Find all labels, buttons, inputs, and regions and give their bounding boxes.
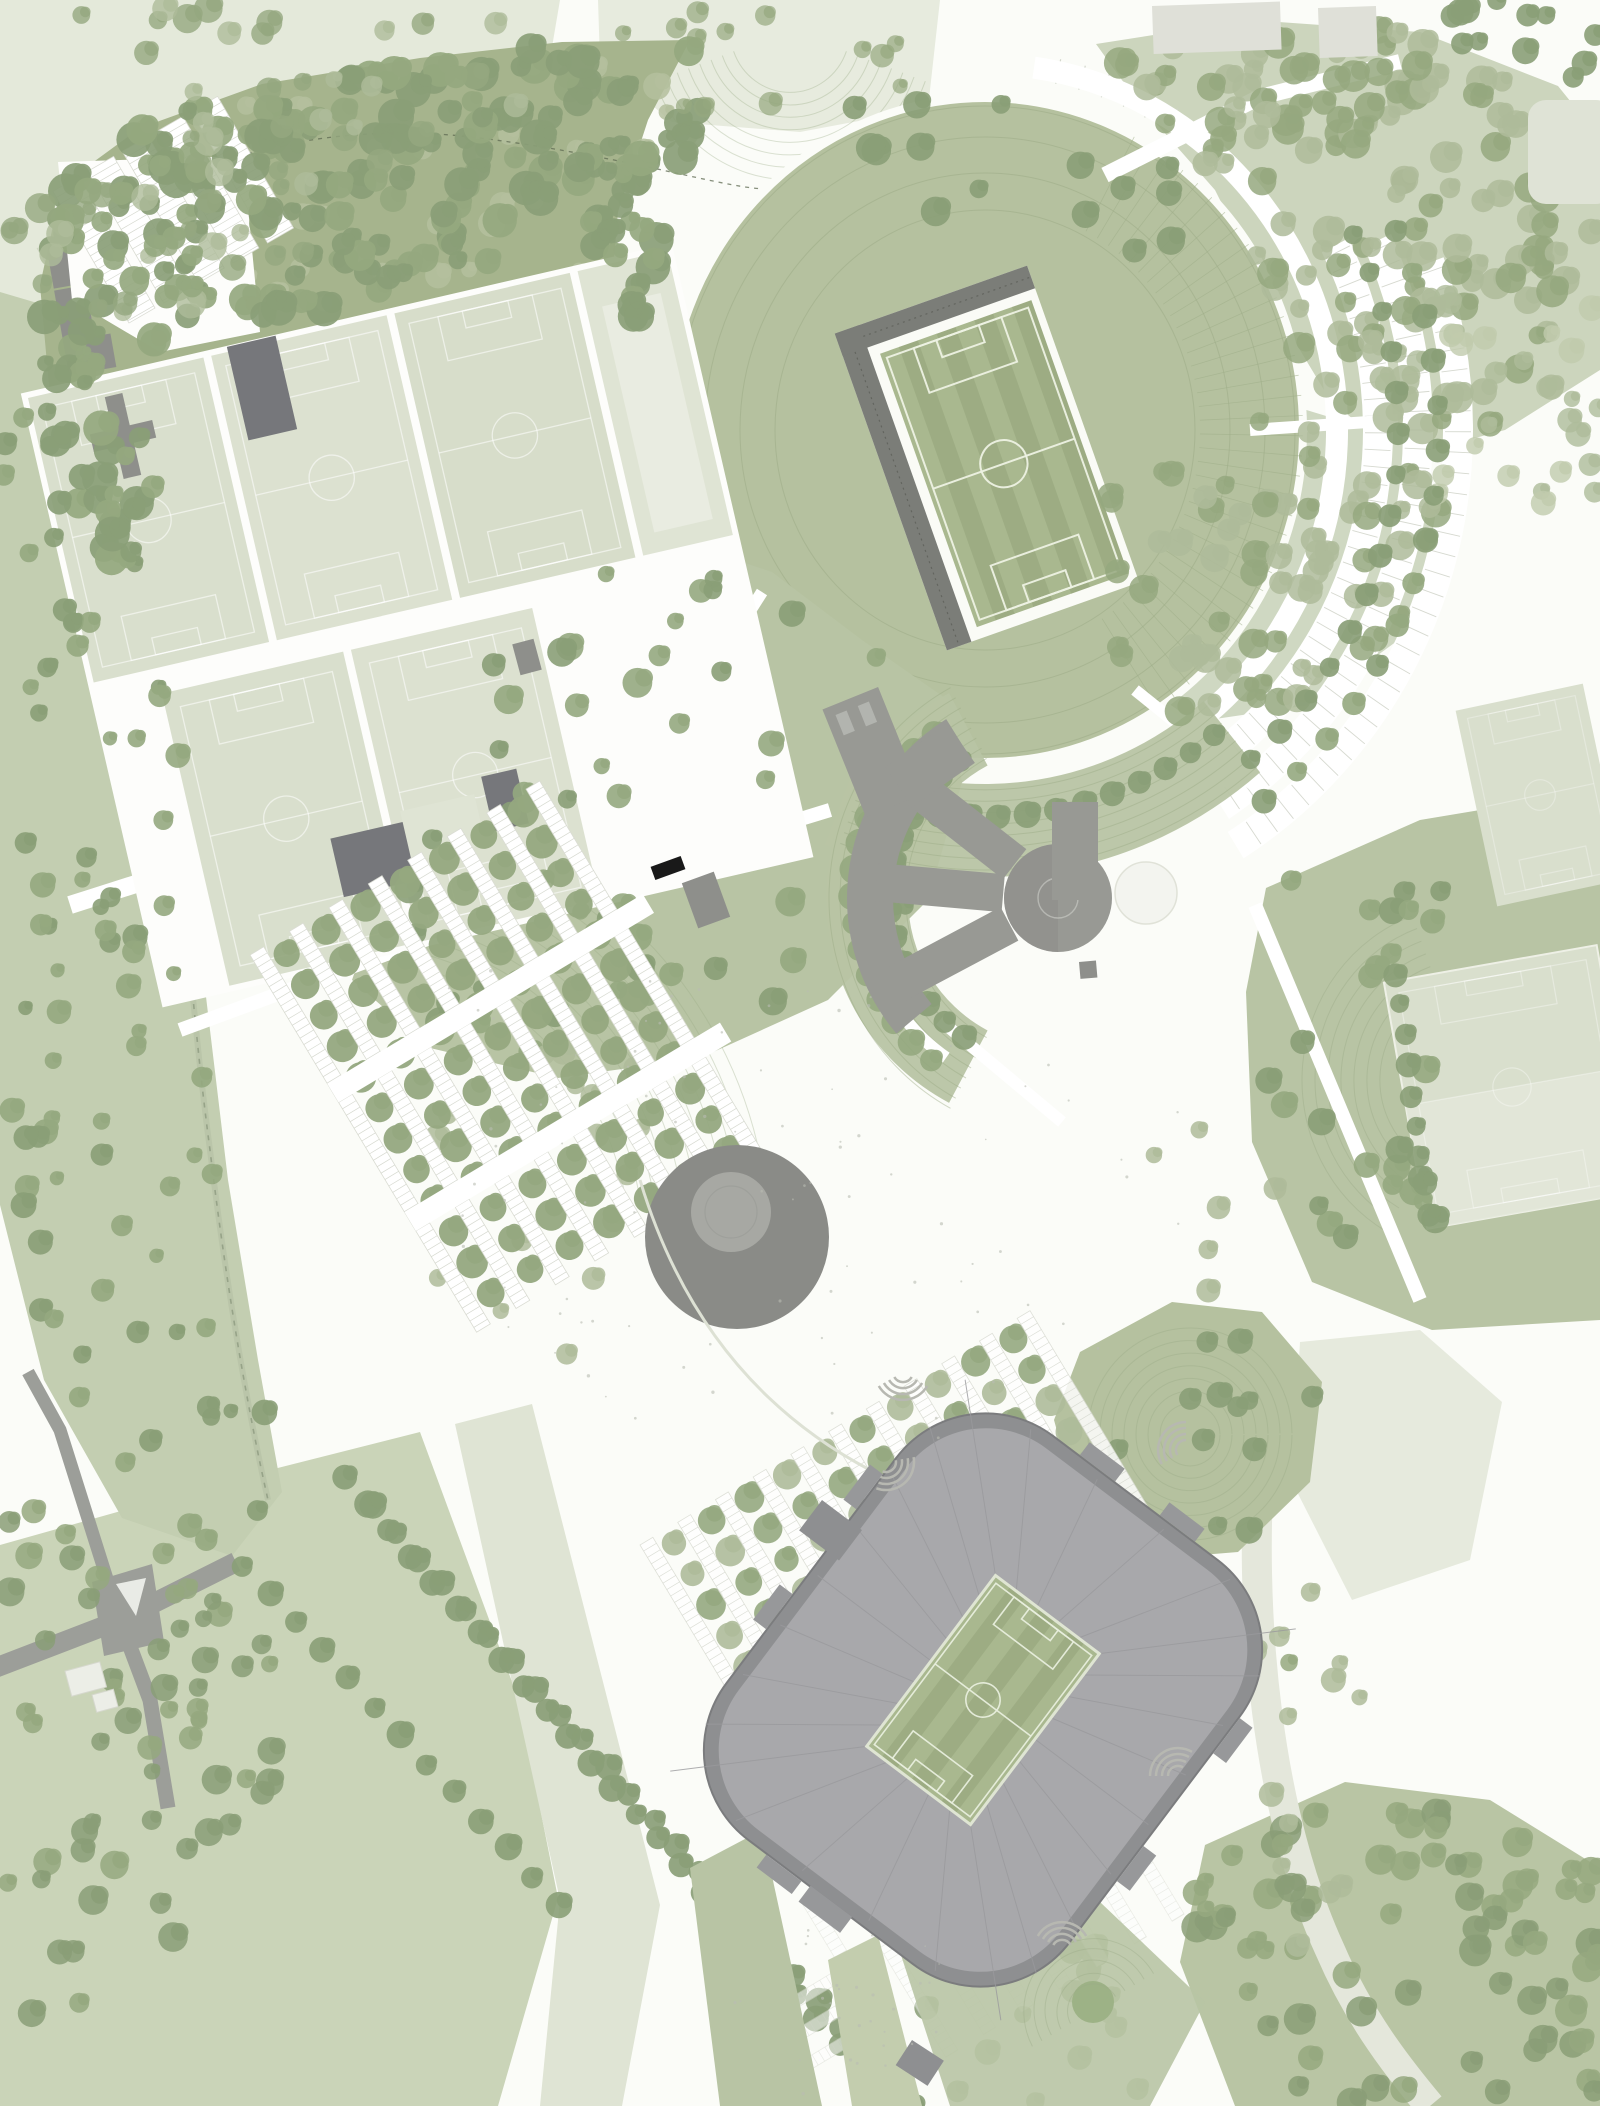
tree-lobe — [1273, 1178, 1287, 1192]
tree-lobe — [24, 1001, 33, 1010]
tree-lobe — [44, 356, 54, 366]
tree-lobe — [1247, 1983, 1258, 1994]
tree-lobe — [658, 646, 671, 659]
tree-lobe — [133, 498, 146, 511]
tree-lobe — [3, 433, 17, 447]
speck — [633, 1211, 635, 1213]
tree-lobe — [1322, 91, 1336, 105]
tree-lobe — [1251, 630, 1269, 648]
tree-lobe — [1263, 492, 1279, 508]
speck — [462, 1245, 465, 1248]
tree-lobe — [1394, 466, 1405, 477]
tree-lobe — [1209, 74, 1226, 91]
tree-lobe — [104, 920, 117, 933]
tree-lobe — [1238, 1329, 1253, 1344]
tree-lobe — [486, 1627, 499, 1640]
tree-lobe — [1292, 57, 1309, 74]
tree-lobe — [123, 292, 138, 307]
tree-lobe — [683, 99, 693, 109]
tree-lobe — [1313, 1803, 1328, 1818]
tree-lobe — [1201, 1429, 1215, 1443]
tree-lobe — [1153, 1147, 1163, 1157]
tree-lobe — [1120, 645, 1134, 659]
speck — [803, 1184, 806, 1187]
tree-lobe — [638, 141, 659, 162]
tree-lobe — [1582, 51, 1597, 66]
tree-lobe — [341, 233, 355, 247]
pale-building — [1152, 2, 1282, 54]
tree-lobe — [1473, 83, 1487, 97]
speck — [940, 1222, 943, 1225]
speck — [867, 1004, 870, 1007]
tree-lobe — [1417, 1146, 1430, 1159]
tree-lobe — [1339, 1875, 1353, 1889]
tree-lobe — [977, 180, 988, 191]
tree-lobe — [1217, 1196, 1231, 1210]
speck — [492, 1017, 494, 1019]
tree-lobe — [1138, 771, 1152, 785]
tree-lobe — [227, 22, 241, 36]
tree-lobe — [163, 262, 175, 274]
tree-lobe — [481, 108, 493, 120]
tree-lobe — [440, 1571, 455, 1586]
speck — [703, 1115, 706, 1118]
tree-lobe — [1212, 544, 1229, 561]
tree-lobe — [764, 6, 776, 18]
tree-lobe — [256, 1501, 268, 1513]
tree-lobe — [1308, 446, 1321, 459]
tree-lobe — [371, 1492, 387, 1508]
tree-lobe — [8, 1512, 21, 1525]
tree-lobe — [575, 694, 589, 708]
tree-lobe — [909, 1030, 925, 1046]
tree-lobe — [1109, 484, 1124, 499]
tree-lobe — [211, 1593, 221, 1603]
tree-lobe — [558, 1705, 571, 1718]
tree-lobe — [1284, 493, 1298, 507]
tree-lobe — [1395, 381, 1409, 395]
tree-lobe — [172, 967, 181, 976]
tree-lobe — [168, 1701, 179, 1712]
speck — [477, 1009, 480, 1012]
speck — [919, 1982, 922, 1985]
tree-lobe — [1324, 372, 1340, 388]
tree-lobe — [1476, 254, 1488, 266]
tree-lobe — [1216, 1517, 1227, 1528]
tree-lobe — [1297, 333, 1316, 352]
tree-lobe — [190, 131, 200, 141]
tree-lobe — [1471, 270, 1485, 284]
tree-lobe — [1459, 332, 1474, 347]
tree-lobe — [1212, 725, 1225, 738]
tree-lobe — [306, 291, 318, 303]
tree-lobe — [1328, 658, 1340, 670]
tree-lobe — [78, 1993, 90, 2005]
speck — [858, 2024, 861, 2027]
speck — [992, 1381, 995, 1384]
speck — [645, 1095, 648, 1098]
tree-lobe — [100, 899, 110, 909]
tree-lobe — [83, 1818, 99, 1834]
tree-lobe — [149, 1430, 163, 1444]
speck — [627, 1066, 629, 1068]
tree-lobe — [158, 156, 171, 169]
site-plan-drawing — [0, 0, 1600, 2106]
tree-lobe — [1474, 438, 1484, 448]
tree-lobe — [617, 784, 632, 799]
tree-lobe — [635, 669, 653, 687]
tree-lobe — [124, 1453, 136, 1465]
tree-lobe — [56, 964, 64, 972]
tree-lobe — [1569, 1995, 1588, 2014]
speck — [884, 1077, 887, 1080]
tree-lobe — [1321, 240, 1333, 252]
tree-lobe — [1203, 644, 1221, 662]
tree-lobe — [394, 1523, 407, 1536]
tree-lobe — [1580, 2029, 1595, 2044]
tree-lobe — [1141, 576, 1158, 593]
tree-lobe — [162, 1675, 178, 1691]
tree-lobe — [1300, 659, 1311, 670]
tree-lobe — [249, 185, 267, 203]
tree-lobe — [402, 264, 413, 275]
tree-lobe — [869, 134, 887, 152]
tree-lobe — [560, 638, 578, 656]
tree-lobe — [680, 124, 691, 135]
tree-lobe — [127, 974, 142, 989]
speck — [634, 1050, 637, 1053]
speck — [809, 1182, 811, 1184]
speck — [884, 2064, 886, 2066]
tree-lobe — [592, 1267, 606, 1281]
speck — [503, 1199, 506, 1202]
tree-lobe — [500, 1303, 510, 1313]
tree-lobe — [398, 1721, 415, 1738]
tree-lobe — [280, 179, 290, 189]
speck — [835, 1984, 838, 1987]
tree-lobe — [30, 2000, 47, 2017]
tree-lobe — [49, 244, 63, 258]
speck — [559, 1312, 562, 1315]
tree-lobe — [54, 365, 71, 382]
speck — [857, 1134, 860, 1137]
tree-lobe — [640, 218, 655, 233]
tree-lobe — [109, 888, 121, 900]
tree-lobe — [148, 1736, 163, 1751]
tree-lobe — [6, 1874, 17, 1885]
tree-lobe — [217, 159, 234, 176]
tree-lobe — [714, 957, 728, 971]
tree-lobe — [274, 246, 287, 259]
speck — [760, 1190, 763, 1193]
tree-lobe — [1550, 276, 1569, 295]
tree-lobe — [253, 153, 270, 170]
tree-lobe — [187, 222, 197, 232]
speck — [554, 1352, 556, 1354]
tree-lobe — [1204, 1901, 1214, 1911]
tree-lobe — [138, 428, 151, 441]
tree-lobe — [1522, 352, 1533, 363]
tree-lobe — [1358, 1690, 1368, 1700]
tree-lobe — [1525, 1869, 1539, 1883]
tree-lobe — [1427, 1204, 1441, 1218]
tree-lobe — [58, 221, 74, 237]
tree-lobe — [1192, 644, 1204, 656]
speck — [584, 1201, 587, 1204]
tree-lobe — [1230, 1845, 1243, 1858]
tree-lobe — [39, 915, 52, 928]
tree-lobe — [91, 269, 103, 281]
tree-lobe — [1319, 550, 1334, 565]
tree-lobe — [1247, 1392, 1258, 1403]
tree-lobe — [1121, 176, 1136, 191]
speck — [928, 1982, 930, 1984]
tree-lobe — [210, 1164, 222, 1176]
speck — [924, 1945, 926, 1947]
tree-lobe — [1277, 543, 1293, 559]
tree-lobe — [1388, 505, 1402, 519]
speck — [461, 1214, 464, 1217]
tree-lobe — [383, 21, 395, 33]
tree-lobe — [100, 1113, 110, 1123]
tree-lobe — [771, 988, 788, 1005]
tree-lobe — [1509, 1889, 1523, 1903]
speck — [830, 1290, 833, 1293]
tree-lobe — [140, 115, 159, 134]
tree-lobe — [269, 1581, 285, 1597]
tree-lobe — [1396, 423, 1410, 437]
speck — [938, 1963, 940, 1965]
tree-lobe — [165, 285, 179, 299]
tree-lobe — [1133, 239, 1147, 253]
tree-lobe — [206, 127, 224, 145]
tree-lobe — [1378, 1845, 1396, 1863]
speck — [670, 995, 673, 998]
tree-lobe — [1307, 422, 1320, 435]
speck — [711, 1391, 714, 1394]
tree-lobe — [678, 141, 699, 162]
tree-lobe — [1267, 1068, 1283, 1084]
tree-lobe — [277, 162, 288, 173]
tree-lobe — [530, 1867, 543, 1880]
tree-lobe — [1365, 1153, 1380, 1168]
tree-lobe — [342, 98, 358, 114]
tree-lobe — [769, 92, 783, 106]
tree-lobe — [310, 205, 327, 222]
tree-lobe — [1454, 1854, 1467, 1867]
tree-lobe — [1297, 2004, 1316, 2023]
speck — [580, 1321, 582, 1323]
tree-lobe — [27, 544, 38, 555]
tree-lobe — [1207, 694, 1221, 708]
tree-lobe — [1305, 266, 1317, 278]
speck — [591, 1320, 594, 1323]
tree-lobe — [1326, 217, 1345, 236]
tree-lobe — [636, 924, 652, 940]
tree-lobe — [99, 1733, 110, 1744]
tree-lobe — [1207, 1279, 1221, 1293]
tree-lobe — [581, 1729, 594, 1742]
tree-lobe — [1515, 1828, 1533, 1846]
tree-lobe — [712, 570, 723, 581]
tree-lobe — [205, 1319, 216, 1330]
tree-lobe — [263, 1400, 278, 1415]
tree-lobe — [1404, 1024, 1417, 1037]
tree-lobe — [1224, 476, 1235, 487]
speck — [937, 1436, 940, 1439]
tree-lobe — [1369, 238, 1381, 250]
speck — [870, 996, 872, 998]
tree-lobe — [76, 635, 89, 648]
tree-lobe — [1369, 964, 1384, 979]
tree-lobe — [1373, 2075, 1390, 2092]
speck — [489, 1127, 492, 1130]
tree-lobe — [1352, 226, 1363, 237]
speck — [605, 1396, 607, 1398]
speck — [489, 969, 492, 972]
tree-lobe — [674, 613, 684, 623]
tree-lobe — [228, 1814, 241, 1827]
tree-lobe — [100, 212, 112, 224]
tree-lobe — [211, 233, 228, 250]
tree-lobe — [198, 1713, 208, 1723]
tree-lobe — [1359, 1997, 1377, 2015]
tree-lobe — [153, 235, 167, 249]
pavilion-roof — [691, 1172, 771, 1252]
tree-lobe — [1396, 614, 1410, 628]
tree-lobe — [1352, 693, 1366, 707]
tree-lobe — [1554, 242, 1568, 256]
speck — [831, 1412, 834, 1415]
tree-lobe — [506, 686, 524, 704]
tree-lobe — [81, 872, 91, 882]
tree-lobe — [52, 528, 64, 540]
tree-lobe — [80, 465, 96, 481]
tree-lobe — [1436, 396, 1448, 408]
speck — [807, 1929, 810, 1932]
tree-lobe — [419, 122, 435, 138]
tree-lobe — [78, 1387, 90, 1399]
tree-lobe — [618, 79, 635, 96]
tree-lobe — [193, 1148, 202, 1157]
tree-lobe — [548, 106, 563, 121]
tree-lobe — [82, 346, 91, 355]
tree-lobe — [1249, 750, 1261, 762]
tree-lobe — [81, 1839, 96, 1854]
tree-lobe — [962, 1025, 977, 1040]
tree-lobe — [448, 100, 462, 114]
speck — [1047, 1064, 1050, 1067]
tree-lobe — [38, 194, 56, 212]
tree-lobe — [52, 1310, 63, 1321]
tree-lobe — [1115, 560, 1129, 574]
speck — [1027, 1304, 1030, 1307]
tree-lobe — [1403, 1852, 1421, 1870]
tree-lobe — [1395, 185, 1406, 196]
hq-north-wing — [1052, 802, 1098, 900]
tree-lobe — [57, 491, 72, 506]
tree-lobe — [1255, 689, 1267, 701]
tree-lobe — [1431, 349, 1446, 364]
tree-lobe — [49, 658, 58, 667]
tree-lobe — [190, 245, 203, 258]
tree-lobe — [1402, 2077, 1418, 2093]
tree-lobe — [1166, 157, 1180, 171]
tree-lobe — [294, 1612, 307, 1625]
tree-lobe — [1255, 247, 1266, 258]
speck — [971, 1263, 973, 1265]
pale-court — [1528, 100, 1600, 204]
tree-lobe — [1462, 293, 1479, 310]
tree-lobe — [1290, 871, 1302, 883]
tree-lobe — [24, 833, 37, 846]
tree-lobe — [136, 1321, 149, 1334]
tree-lobe — [510, 1649, 525, 1664]
tree-lobe — [1311, 1386, 1324, 1399]
tree-lobe — [1260, 168, 1277, 185]
tree-lobe — [1365, 584, 1379, 598]
tree-lobe — [393, 100, 415, 122]
tree-lobe — [203, 1647, 219, 1663]
speck — [1120, 1159, 1122, 1161]
tree-lobe — [400, 166, 415, 181]
tree-lobe — [557, 1893, 573, 1909]
tree-lobe — [486, 249, 502, 265]
tree-lobe — [1545, 378, 1557, 390]
tree-lobe — [431, 830, 443, 842]
tree-lobe — [1434, 1799, 1451, 1816]
tree-lobe — [479, 1809, 494, 1824]
tree-lobe — [1167, 181, 1182, 196]
tree-lobe — [696, 2, 709, 15]
speck — [856, 2062, 859, 2065]
tree-lobe — [1523, 38, 1539, 54]
knoll — [1072, 1981, 1114, 2023]
tree-lobe — [1308, 580, 1323, 595]
tree-lobe — [2, 465, 15, 478]
tree-lobe — [1270, 259, 1289, 278]
tree-lobe — [1406, 1980, 1422, 1996]
tree-lobe — [81, 1346, 92, 1357]
tree-lobe — [1368, 330, 1383, 345]
tree-lobe — [1541, 2026, 1558, 2043]
tree-lobe — [580, 46, 600, 66]
tree-lobe — [589, 212, 602, 225]
tree-lobe — [1238, 503, 1252, 517]
tree-lobe — [1226, 658, 1242, 674]
speck — [838, 1988, 840, 1990]
speck — [1125, 1175, 1128, 1178]
tree-lobe — [112, 1852, 129, 1869]
tree-lobe — [1289, 1874, 1307, 1892]
speck — [999, 1250, 1002, 1253]
tree-lobe — [724, 23, 734, 33]
speck — [884, 2031, 886, 2033]
tree-lobe — [321, 292, 342, 313]
tree-lobe — [143, 184, 159, 200]
tree-lobe — [205, 1529, 218, 1542]
tree-lobe — [120, 1216, 133, 1229]
tree-lobe — [1348, 620, 1363, 635]
tree-lobe — [1164, 757, 1178, 771]
tree-lobe — [933, 197, 951, 215]
tree-lobe — [894, 36, 904, 46]
tree-lobe — [1317, 1197, 1328, 1208]
tree-lobe — [1394, 964, 1408, 978]
speck — [846, 1265, 848, 1267]
tree-lobe — [1423, 1172, 1438, 1187]
tree-lobe — [637, 302, 655, 320]
